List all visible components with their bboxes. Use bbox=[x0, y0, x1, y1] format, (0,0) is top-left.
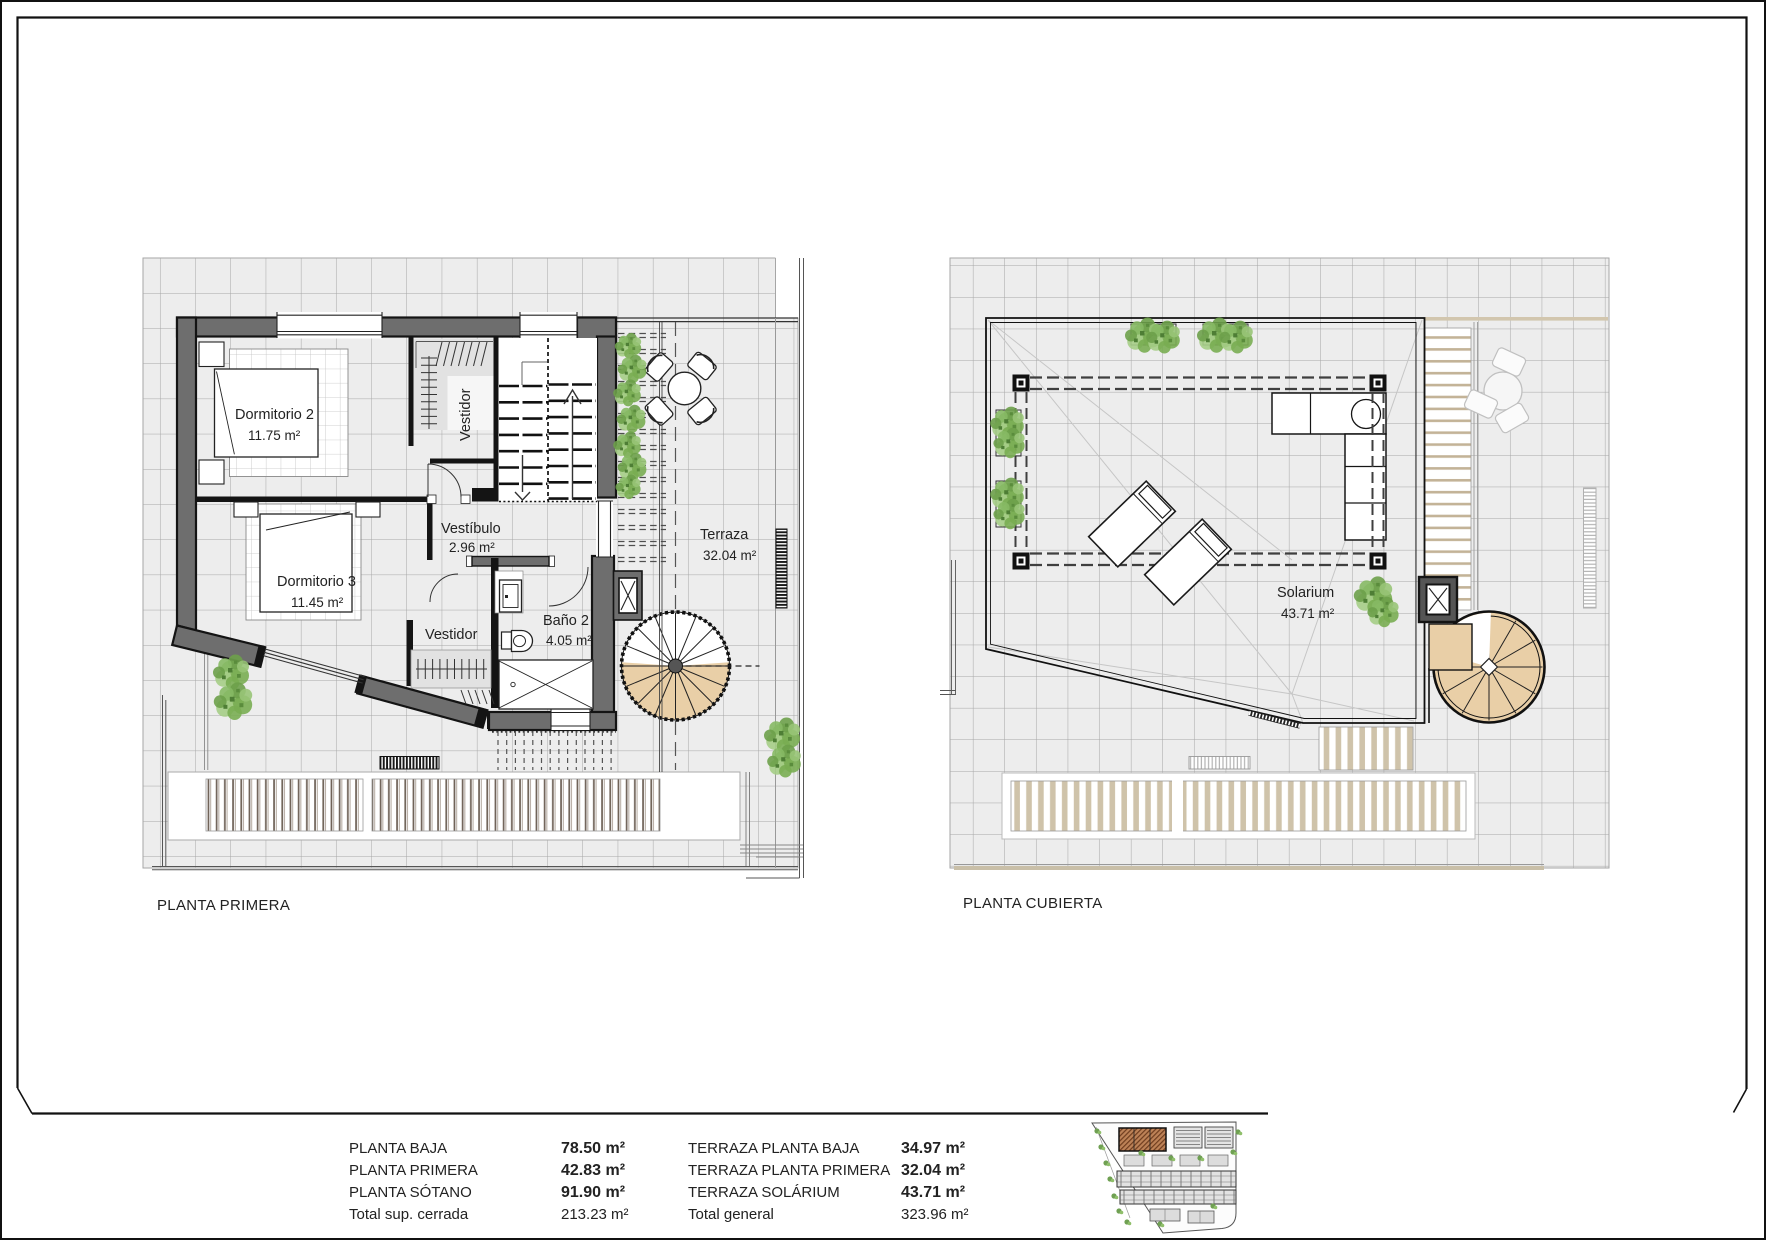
svg-text:TERRAZA SOLÁRIUM: TERRAZA SOLÁRIUM bbox=[688, 1184, 840, 1201]
svg-text:PLANTA SÓTANO: PLANTA SÓTANO bbox=[349, 1184, 472, 1201]
svg-text:11.45 m²: 11.45 m² bbox=[291, 595, 344, 610]
svg-text:Total general: Total general bbox=[688, 1206, 774, 1223]
svg-text:PLANTA CUBIERTA: PLANTA CUBIERTA bbox=[963, 895, 1103, 912]
svg-text:32.04 m²: 32.04 m² bbox=[703, 548, 757, 563]
svg-text:Vestíbulo: Vestíbulo bbox=[441, 521, 501, 537]
svg-text:Solarium: Solarium bbox=[1277, 585, 1334, 601]
svg-text:34.97 m²: 34.97 m² bbox=[901, 1140, 965, 1157]
svg-text:Vestidor: Vestidor bbox=[425, 627, 478, 643]
svg-text:11.75 m²: 11.75 m² bbox=[248, 428, 301, 443]
svg-text:43.71 m²: 43.71 m² bbox=[1281, 606, 1335, 621]
svg-text:4.05 m²: 4.05 m² bbox=[546, 633, 592, 648]
svg-text:323.96 m²: 323.96 m² bbox=[901, 1206, 969, 1223]
svg-text:32.04 m²: 32.04 m² bbox=[901, 1162, 965, 1179]
svg-text:78.50 m²: 78.50 m² bbox=[561, 1140, 625, 1157]
svg-text:2.96 m²: 2.96 m² bbox=[449, 540, 495, 555]
svg-text:Dormitorio 3: Dormitorio 3 bbox=[277, 574, 356, 590]
svg-text:PLANTA PRIMERA: PLANTA PRIMERA bbox=[157, 897, 290, 914]
svg-text:TERRAZA PLANTA BAJA: TERRAZA PLANTA BAJA bbox=[688, 1140, 859, 1157]
svg-text:Terraza: Terraza bbox=[700, 527, 749, 543]
svg-text:Dormitorio 2: Dormitorio 2 bbox=[235, 407, 314, 423]
svg-text:Vestidor: Vestidor bbox=[458, 388, 474, 441]
svg-text:91.90 m²: 91.90 m² bbox=[561, 1184, 625, 1201]
svg-text:43.71 m²: 43.71 m² bbox=[901, 1184, 965, 1201]
svg-text:Total sup. cerrada: Total sup. cerrada bbox=[349, 1206, 469, 1223]
svg-text:213.23 m²: 213.23 m² bbox=[561, 1206, 629, 1223]
svg-text:Baño 2: Baño 2 bbox=[543, 613, 589, 629]
svg-text:42.83 m²: 42.83 m² bbox=[561, 1162, 625, 1179]
svg-text:PLANTA BAJA: PLANTA BAJA bbox=[349, 1140, 447, 1157]
svg-text:TERRAZA PLANTA PRIMERA: TERRAZA PLANTA PRIMERA bbox=[688, 1162, 890, 1179]
svg-text:PLANTA PRIMERA: PLANTA PRIMERA bbox=[349, 1162, 478, 1179]
